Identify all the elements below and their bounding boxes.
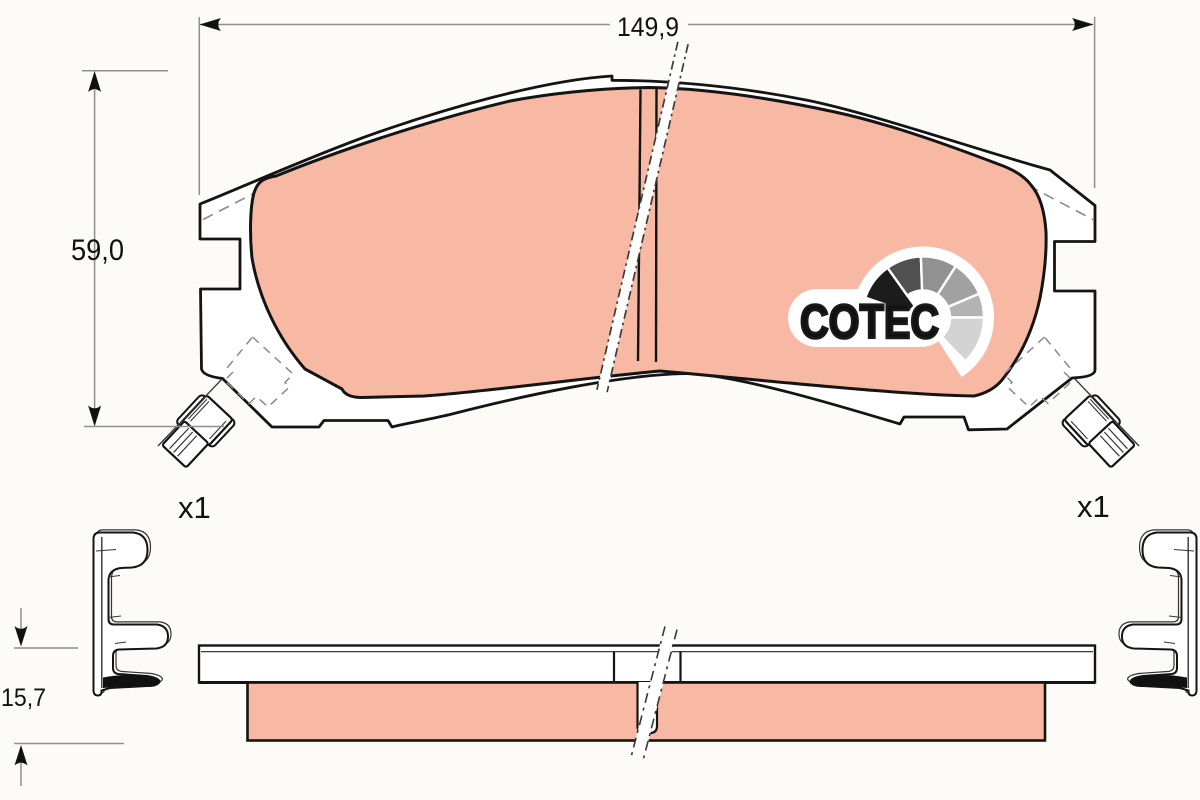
svg-text:x1: x1 [178,490,211,525]
svg-text:15,7: 15,7 [1,684,46,712]
svg-text:x1: x1 [1077,489,1110,524]
svg-text:149,9: 149,9 [617,12,679,42]
svg-text:59,0: 59,0 [71,234,124,267]
svg-text:COTEC: COTEC [800,296,939,349]
